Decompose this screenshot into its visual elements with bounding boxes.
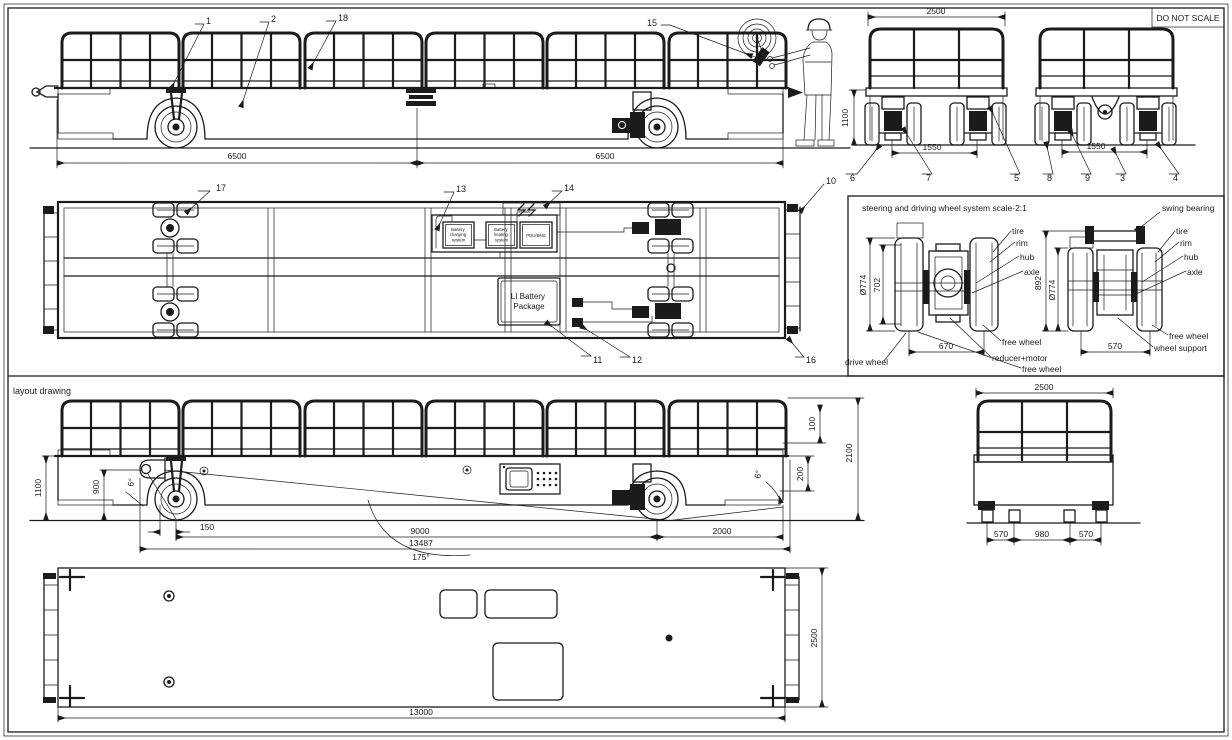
dim-steer-tire-dia: Ø774: [1047, 279, 1057, 300]
dim-steer-height: 892: [1033, 276, 1043, 290]
plan-left-ladder: [43, 573, 58, 703]
label-rim-drive: rim: [1016, 238, 1028, 248]
dim-total-height: 2100: [844, 443, 854, 462]
plan-left-bumper: [43, 206, 58, 334]
layout-plan-view: 13000 2500: [43, 568, 828, 722]
callout-16: 16: [806, 355, 816, 365]
dim-overhang: 2000: [713, 526, 732, 536]
dim-angle-rear: 6°: [752, 469, 763, 479]
callout-13: 13: [456, 184, 466, 194]
dim-track-a: 570: [994, 529, 1008, 539]
dim-drive-rim-dia: 702: [872, 278, 882, 292]
callout-9: 9: [1085, 173, 1090, 183]
label-free-wheel-drive-upper: free wheel: [1002, 337, 1041, 347]
end-views: 2500 1100 1550 1550 6 7 5 8 9 3 4: [840, 6, 1195, 183]
callout-10: 10: [826, 176, 836, 186]
callout-5: 5: [1014, 173, 1019, 183]
label-rim-steer: rim: [1180, 238, 1192, 248]
drawing-canvas: DO NOT SCALE layout drawing: [0, 0, 1232, 740]
dim-rail-100: 100: [807, 417, 817, 431]
layout-dimensions: 1100 900 6° 6° 150 9000 2000 13487 175° …: [33, 398, 864, 562]
dim-overall-length: 13487: [409, 538, 433, 548]
callout-1: 1: [206, 16, 211, 26]
dim-deck-height: 1100: [840, 109, 850, 128]
dim-step-200: 200: [795, 467, 805, 481]
dim-body-width: 2500: [927, 6, 946, 16]
dim-hook-height: 900: [91, 480, 101, 494]
callout-15: 15: [647, 18, 657, 28]
label-drive-wheel: drive wheel: [845, 357, 888, 367]
plan-steer-bogies: [153, 203, 198, 337]
plan-right-bumper: [785, 204, 800, 334]
layout-end-view: 2500 570 980 570: [967, 382, 1140, 545]
side-body: [32, 84, 803, 139]
label-tire-drive: tire: [1012, 226, 1024, 236]
layout-front-wheel: [155, 456, 197, 520]
layout-side-view: 1100 900 6° 6° 150 9000 2000 13487 175° …: [30, 398, 864, 562]
label-wheel-support: wheel support: [1153, 343, 1208, 353]
label-axle-steer: axle: [1187, 267, 1203, 277]
callout-3: 3: [1120, 173, 1125, 183]
dim-rear-length: 6500: [596, 151, 615, 161]
equipment-bay: Battery charging system Battery heating …: [432, 203, 652, 327]
wheel-detail: steering and driving wheel system scale-…: [845, 196, 1224, 376]
dim-plan-length: 13000: [409, 707, 433, 717]
box-battery-heating: Battery heating system: [494, 227, 509, 242]
callout-8: 8: [1047, 173, 1052, 183]
dim-drive-tire-dia: Ø774: [858, 274, 868, 295]
dim-drive-track: 670: [939, 341, 953, 351]
dim-layout-end-width: 2500: [1035, 382, 1054, 392]
dim-track-c: 570: [1079, 529, 1093, 539]
top-side-view: 6500 6500 1 2 18 15: [30, 13, 850, 168]
cad-drawing-sheet: DO NOT SCALE layout drawing: [0, 0, 1232, 740]
wheel-detail-labels: tire rim hub axle free wheel reducer+mot…: [845, 203, 1215, 374]
label-reducer-motor: reducer+motor: [992, 353, 1048, 363]
dim-plan-width: 2500: [809, 628, 819, 647]
layout-control-panel: [500, 464, 560, 494]
dim-track-steer: 1550: [1087, 141, 1106, 151]
label-free-wheel-steer: free wheel: [1169, 331, 1208, 341]
side-dimensions: 6500 6500: [57, 100, 783, 168]
box-li-battery: LI Battery Package: [511, 292, 547, 311]
layout-drawing-label: layout drawing: [13, 386, 71, 396]
callout-18: 18: [338, 13, 348, 23]
label-axle-drive: axle: [1024, 267, 1040, 277]
box-battery-charging: Battery charging system: [450, 227, 468, 242]
front-wheel: [155, 88, 197, 148]
callout-17: 17: [216, 183, 226, 193]
dim-wheelbase: 9000: [411, 526, 430, 536]
callout-6: 6: [850, 173, 855, 183]
dim-track-fixed: 1550: [923, 142, 942, 152]
callout-14: 14: [564, 183, 574, 193]
dim-angle-front: 6°: [125, 477, 136, 487]
dim-track-b: 980: [1035, 529, 1049, 539]
dim-wheel-offset: 150: [200, 522, 214, 532]
callout-2: 2: [271, 14, 276, 24]
drive-unit: [895, 223, 998, 331]
dim-ramp-angle: 175°: [412, 552, 430, 562]
layout-end-dimensions: 2500 570 980 570: [976, 382, 1113, 545]
callout-11: 11: [593, 355, 602, 365]
dim-layout-height: 1100: [33, 479, 43, 498]
callout-4: 4: [1173, 173, 1178, 183]
operator-figure: [768, 19, 835, 146]
box-pdu-bms: PDU/BMS: [526, 233, 546, 238]
callout-7: 7: [926, 173, 931, 183]
label-hub-steer: hub: [1184, 252, 1198, 262]
dim-front-length: 6500: [228, 151, 247, 161]
label-hub-drive: hub: [1020, 252, 1034, 262]
label-free-wheel-drive-lower: free wheel: [1022, 364, 1061, 374]
plan-right-ladder: [785, 573, 799, 703]
wheel-detail-title: steering and driving wheel system scale-…: [862, 203, 1027, 213]
plan-drive-bogies: [632, 203, 693, 337]
label-swing-bearing: swing bearing: [1162, 203, 1215, 213]
label-tire-steer: tire: [1176, 226, 1188, 236]
callout-12: 12: [632, 355, 642, 365]
do-not-scale-note: DO NOT SCALE: [1156, 13, 1219, 23]
dim-steer-track: 570: [1108, 341, 1122, 351]
plan-view: Battery charging system Battery heating …: [43, 176, 836, 365]
